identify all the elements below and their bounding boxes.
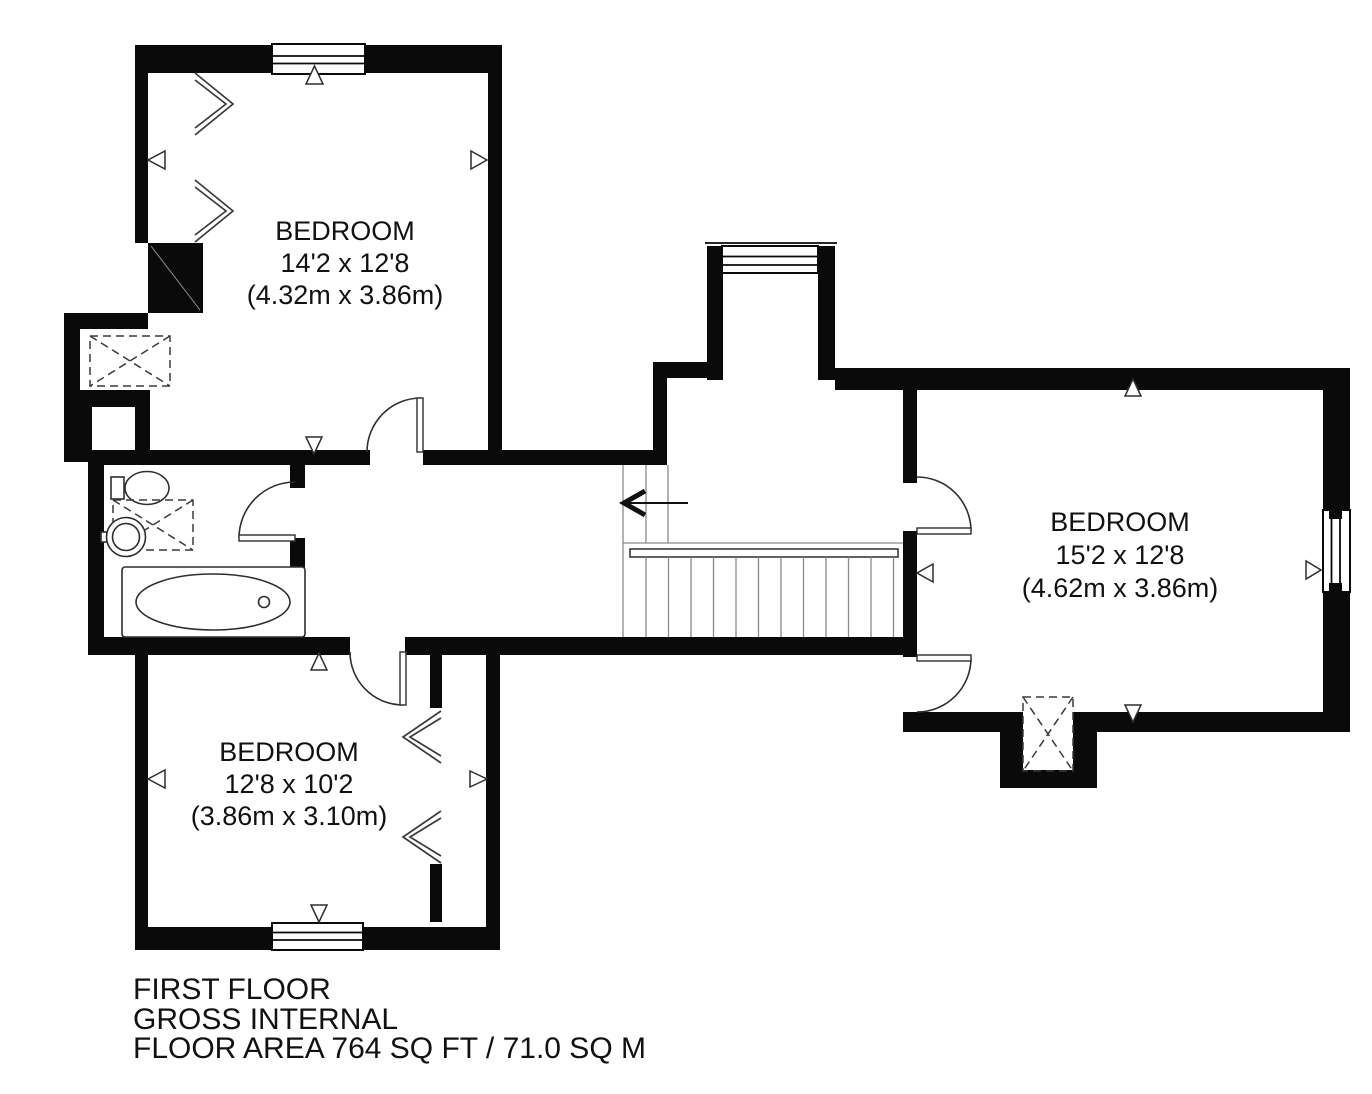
wall-segment	[903, 378, 917, 483]
floor-plan-page: BEDROOM 14'2 x 12'8 (4.32m x 3.86m) BEDR…	[0, 0, 1372, 1094]
wall-segment	[1323, 368, 1350, 510]
wall-segment	[135, 45, 272, 73]
wall-segment	[363, 927, 500, 950]
marker-left	[917, 564, 933, 582]
room-size-ft: 15'2 x 12'8	[1056, 540, 1185, 570]
wall-stub	[430, 864, 442, 922]
floor-plan-drawing: BEDROOM 14'2 x 12'8 (4.32m x 3.86m) BEDR…	[0, 0, 1372, 1094]
window-bottom-left-bedroom	[272, 923, 363, 950]
wall-segment	[405, 637, 917, 655]
dormer-wall	[818, 246, 835, 380]
wall-segment	[365, 45, 502, 73]
room-name: BEDROOM	[275, 216, 415, 246]
door-top-left-bedroom	[367, 398, 423, 452]
wall-segment	[135, 927, 272, 950]
door-right-bedroom-upper	[917, 477, 971, 534]
bathtub	[122, 567, 305, 637]
room-name: BEDROOM	[1050, 507, 1190, 537]
eaves-chevrons-top-left-bedroom	[195, 73, 233, 242]
stair-handrail	[630, 549, 898, 557]
footer-line-1: FIRST FLOOR	[133, 973, 331, 1006]
marker-left	[148, 151, 165, 169]
room-name: BEDROOM	[219, 737, 359, 767]
marker-right	[471, 151, 487, 169]
wall-segment	[653, 367, 667, 458]
window-right-bedroom	[1323, 510, 1350, 592]
footer-line-3: FLOOR AREA 764 SQ FT / 71.0 SQ M	[133, 1032, 646, 1065]
staircase	[623, 465, 903, 637]
room-size-m: (4.32m x 3.86m)	[247, 280, 444, 310]
room-size-ft: 14'2 x 12'8	[281, 248, 410, 278]
door-bottom-left-bedroom	[350, 652, 406, 705]
wash-basin	[101, 518, 146, 557]
wall-segment	[135, 45, 148, 243]
room-label-right-bedroom: BEDROOM 15'2 x 12'8 (4.62m x 3.86m)	[1022, 507, 1219, 603]
wall-segment	[64, 400, 92, 462]
stair-direction-arrow	[624, 491, 688, 515]
door-bathroom	[239, 482, 295, 541]
bathroom	[101, 472, 305, 638]
marker-right	[1306, 561, 1321, 579]
room-size-m: (3.86m x 3.10m)	[191, 801, 388, 831]
marker-up	[311, 653, 327, 670]
wall-segment	[92, 637, 350, 655]
door-right-bedroom-lower	[917, 655, 971, 712]
wall-segment	[1073, 712, 1350, 732]
floor-area-summary: FIRST FLOOR GROSS INTERNAL FLOOR AREA 76…	[133, 973, 646, 1065]
wardrobe-top-left	[90, 336, 170, 386]
wall-segment	[903, 531, 917, 657]
marker-down	[311, 905, 327, 922]
wall-segment	[486, 650, 500, 950]
room-label-bottom-left-bedroom: BEDROOM 12'8 x 10'2 (3.86m x 3.10m)	[191, 737, 388, 831]
room-size-m: (4.62m x 3.86m)	[1022, 573, 1219, 603]
marker-right	[470, 771, 487, 787]
wall-segment	[135, 637, 148, 950]
dormer-wall	[707, 246, 723, 380]
eaves-chevrons-bottom-left-bedroom	[403, 711, 441, 863]
wall-segment	[92, 450, 370, 465]
window-dormer	[705, 243, 837, 273]
marker-left	[148, 770, 165, 788]
window-top-left-bedroom	[272, 44, 365, 74]
chimney-recess-wall	[1000, 770, 1097, 788]
wall-segment	[1323, 592, 1350, 732]
chimney-right-bedroom	[1023, 697, 1073, 771]
room-label-top-left-bedroom: BEDROOM 14'2 x 12'8 (4.32m x 3.86m)	[247, 216, 444, 310]
wall-segment	[488, 45, 502, 455]
room-size-ft: 12'8 x 10'2	[225, 769, 354, 799]
wall-stub	[430, 650, 442, 708]
wall-segment	[88, 450, 104, 655]
wall-segment	[423, 450, 667, 465]
